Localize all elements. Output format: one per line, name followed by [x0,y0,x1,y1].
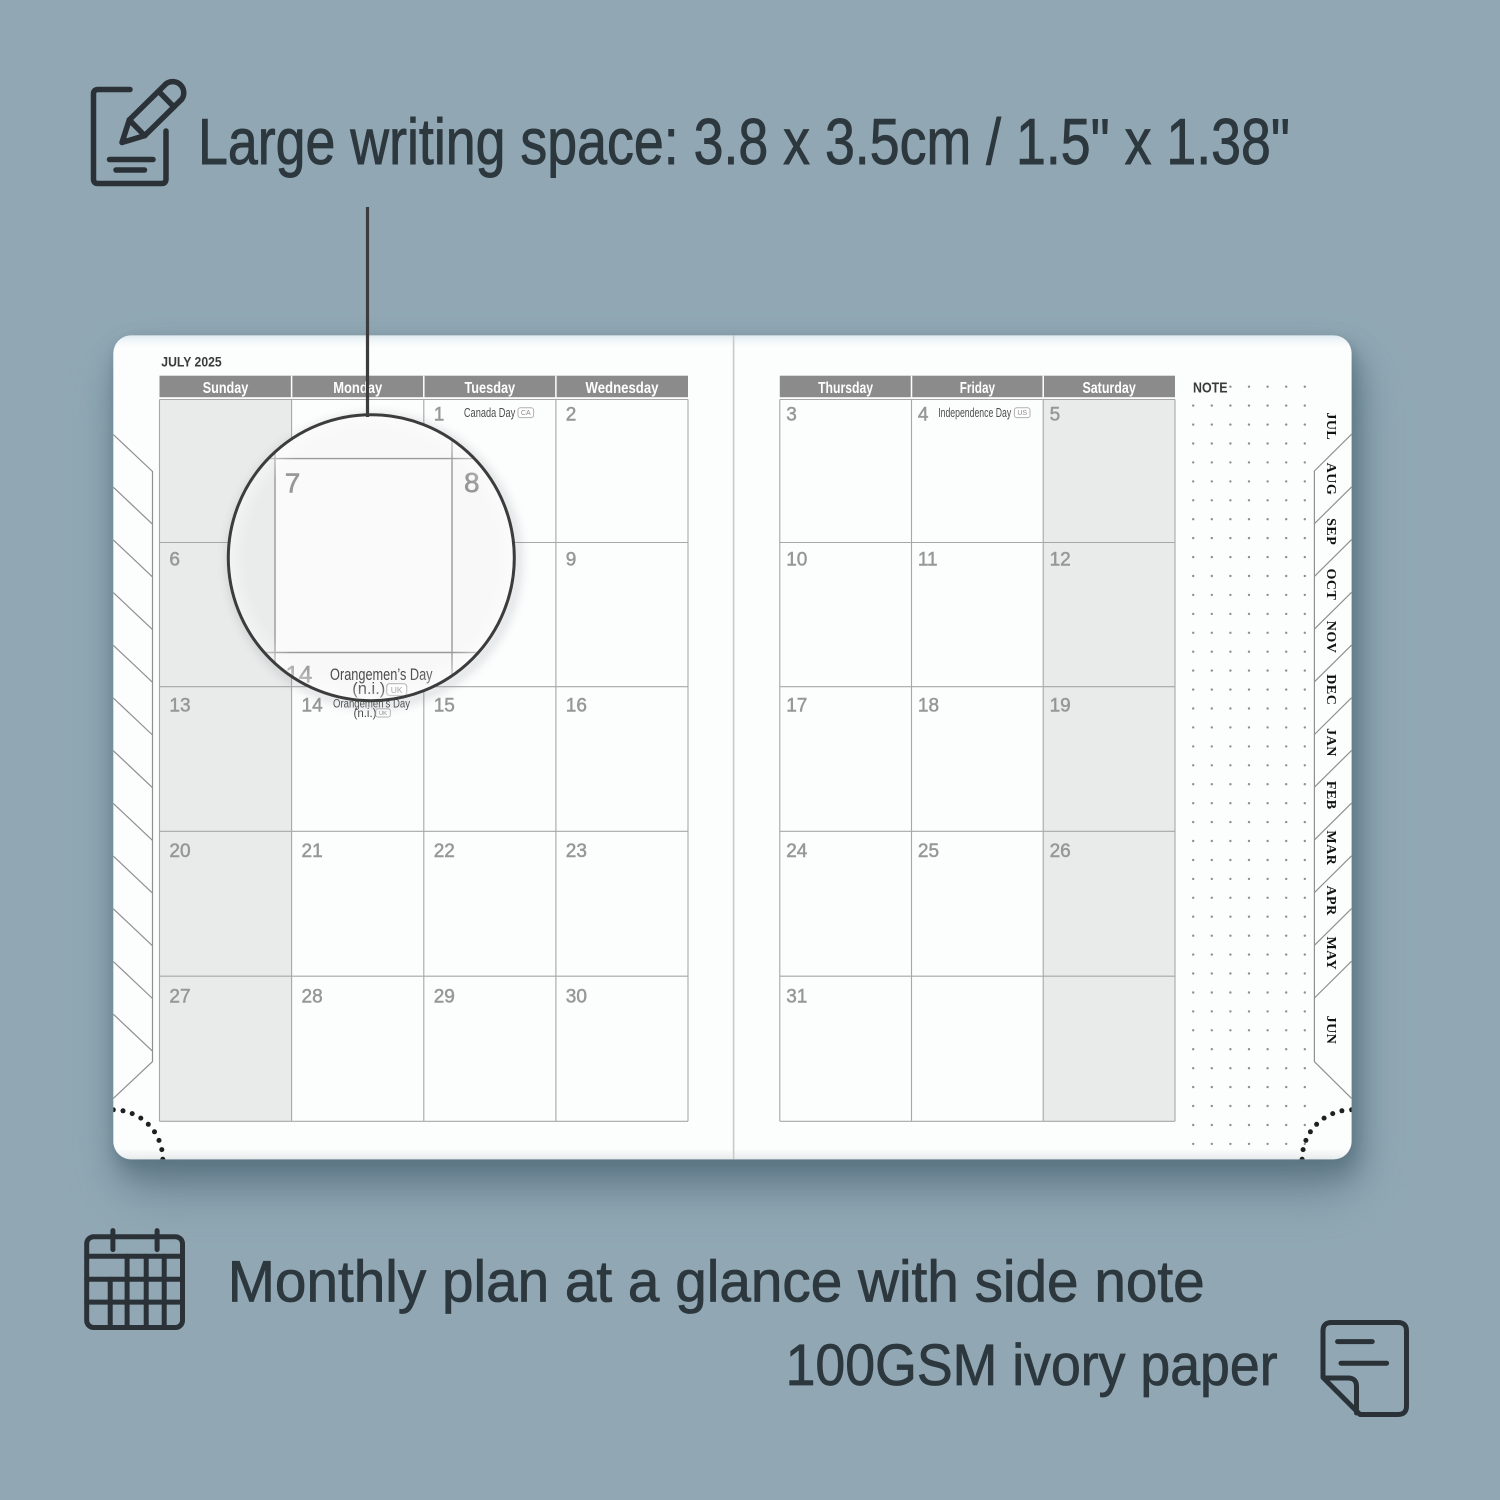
svg-text:4: 4 [918,405,929,426]
svg-text:31: 31 [786,987,807,1008]
svg-text:UK: UK [379,711,387,717]
svg-text:AUG: AUG [1323,463,1338,496]
svg-text:MAR: MAR [1323,830,1338,865]
svg-text:13: 13 [169,696,190,717]
svg-text:Tuesday: Tuesday [464,380,515,397]
svg-text:10: 10 [786,549,807,570]
svg-text:6: 6 [169,549,180,570]
svg-text:25: 25 [918,841,939,862]
svg-text:23: 23 [566,841,587,862]
svg-text:24: 24 [786,841,808,862]
svg-text:JUL: JUL [1323,412,1338,440]
svg-text:Independence Day: Independence Day [938,406,1012,420]
svg-text:Saturday: Saturday [1082,380,1135,397]
svg-text:16: 16 [566,696,587,717]
svg-text:1: 1 [434,405,445,426]
svg-text:20: 20 [169,841,190,862]
svg-text:Canada Day: Canada Day [464,406,516,420]
svg-text:DEC: DEC [1323,674,1338,705]
svg-text:JAN: JAN [1323,728,1338,757]
svg-text:22: 22 [434,841,455,862]
svg-text:CA: CA [521,410,531,417]
svg-text:28: 28 [302,987,323,1008]
svg-text:MAY: MAY [1323,936,1338,970]
svg-text:27: 27 [169,987,190,1008]
svg-text:JULY 2025: JULY 2025 [161,354,222,370]
svg-text:OCT: OCT [1323,568,1338,600]
svg-text:9: 9 [566,549,577,570]
svg-text:15: 15 [434,696,455,717]
svg-text:29: 29 [434,987,455,1008]
svg-text:Monday: Monday [333,380,382,397]
svg-text:NOTE: NOTE [1193,380,1228,397]
svg-text:2: 2 [566,405,577,426]
svg-text:SEP: SEP [1323,518,1338,545]
svg-text:Thursday: Thursday [818,380,873,397]
svg-text:21: 21 [302,841,323,862]
svg-text:US: US [1017,410,1027,417]
svg-text:Friday: Friday [960,380,995,397]
svg-text:12: 12 [1050,549,1071,570]
svg-text:JUN: JUN [1323,1016,1338,1045]
svg-text:Sunday: Sunday [203,380,249,397]
svg-text:26: 26 [1050,841,1071,862]
svg-text:14: 14 [302,696,324,717]
svg-text:30: 30 [566,987,587,1008]
svg-text:19: 19 [1050,696,1071,717]
svg-text:APR: APR [1323,885,1338,916]
svg-text:100GSM ivory paper: 100GSM ivory paper [786,1333,1278,1398]
svg-text:18: 18 [918,696,939,717]
svg-text:5: 5 [1050,405,1061,426]
svg-text:Wednesday: Wednesday [586,380,659,397]
svg-text:Large writing space: 3.8 x 3.5: Large writing space: 3.8 x 3.5cm / 1.5" … [198,105,1290,178]
svg-text:11: 11 [918,549,938,570]
svg-text:3: 3 [786,405,797,426]
svg-text:FEB: FEB [1323,781,1338,810]
svg-text:NOV: NOV [1323,621,1338,654]
svg-text:(n.i.): (n.i.) [354,708,377,720]
svg-text:Monthly plan at a glance with: Monthly plan at a glance with side note [228,1250,1205,1315]
svg-text:17: 17 [786,696,807,717]
